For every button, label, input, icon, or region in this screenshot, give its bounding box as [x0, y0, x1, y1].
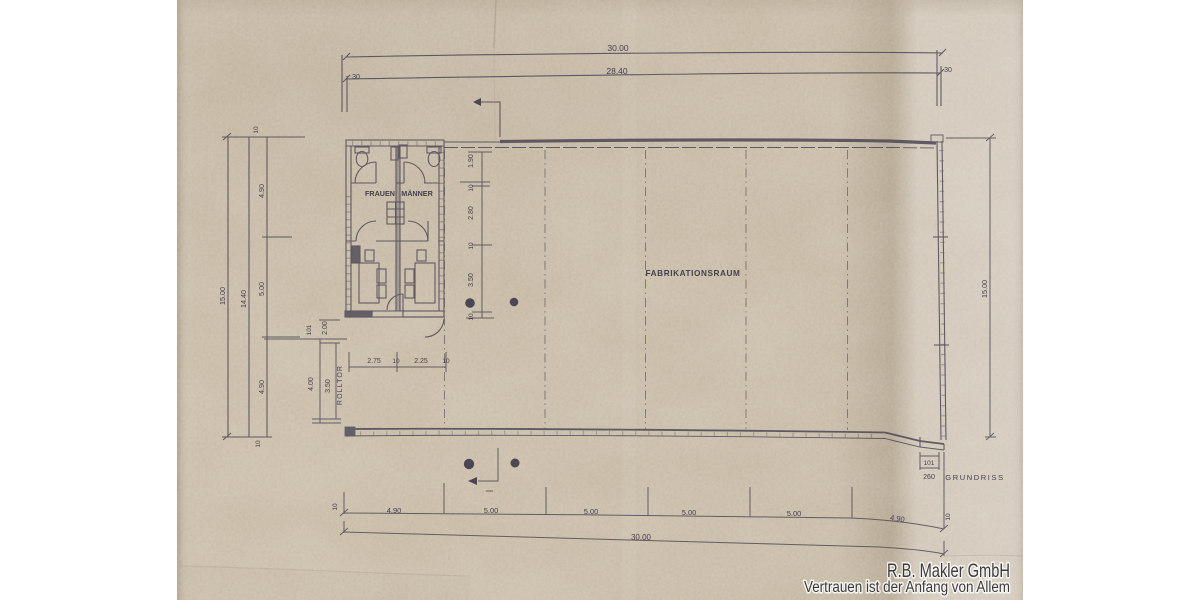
svg-text:10: 10 [468, 242, 475, 250]
svg-text:5.00: 5.00 [257, 282, 266, 296]
svg-text:30: 30 [352, 74, 360, 81]
svg-text:4.90: 4.90 [257, 184, 266, 198]
svg-text:10: 10 [392, 358, 400, 365]
svg-text:30: 30 [944, 67, 952, 74]
svg-text:10: 10 [468, 184, 475, 192]
svg-text:5.00: 5.00 [787, 509, 802, 518]
svg-text:4.90: 4.90 [387, 506, 402, 515]
svg-text:10: 10 [442, 358, 450, 365]
svg-text:30.00: 30.00 [631, 533, 652, 542]
svg-text:2.00: 2.00 [322, 321, 329, 335]
svg-text:101: 101 [306, 324, 313, 335]
svg-text:14.40: 14.40 [239, 290, 248, 308]
svg-text:260: 260 [923, 474, 935, 481]
svg-text:GRUNDRISS: GRUNDRISS [945, 473, 1004, 482]
svg-text:28.40: 28.40 [606, 66, 628, 76]
svg-text:Vertrauen ist der Anfang von A: Vertrauen ist der Anfang von Allem [804, 579, 1010, 596]
svg-text:30.00: 30.00 [607, 43, 629, 53]
svg-text:3.50: 3.50 [325, 379, 332, 393]
svg-text:5.00: 5.00 [584, 507, 599, 516]
svg-text:10: 10 [332, 503, 339, 511]
svg-text:5.00: 5.00 [484, 506, 499, 515]
svg-text:4.90: 4.90 [257, 380, 266, 394]
svg-text:MÄNNER: MÄNNER [401, 189, 433, 198]
svg-text:10: 10 [468, 313, 475, 321]
svg-text:ROLLTOR: ROLLTOR [337, 365, 344, 405]
svg-text:10: 10 [253, 126, 260, 134]
svg-text:5.00: 5.00 [682, 508, 697, 517]
svg-text:101: 101 [924, 460, 935, 467]
svg-text:3.50: 3.50 [468, 273, 475, 287]
svg-text:FRAUEN: FRAUEN [365, 189, 395, 198]
svg-text:2.75: 2.75 [367, 358, 381, 365]
svg-text:2.25: 2.25 [414, 358, 428, 365]
svg-text:10: 10 [945, 513, 952, 521]
svg-text:4.00: 4.00 [308, 377, 315, 391]
svg-text:2.80: 2.80 [468, 206, 475, 220]
svg-text:1.90: 1.90 [468, 154, 475, 168]
svg-text:FABRIKATIONSRAUM: FABRIKATIONSRAUM [646, 269, 741, 278]
svg-text:10: 10 [255, 440, 262, 448]
svg-text:15.00: 15.00 [980, 280, 989, 298]
svg-text:15.00: 15.00 [218, 287, 227, 305]
